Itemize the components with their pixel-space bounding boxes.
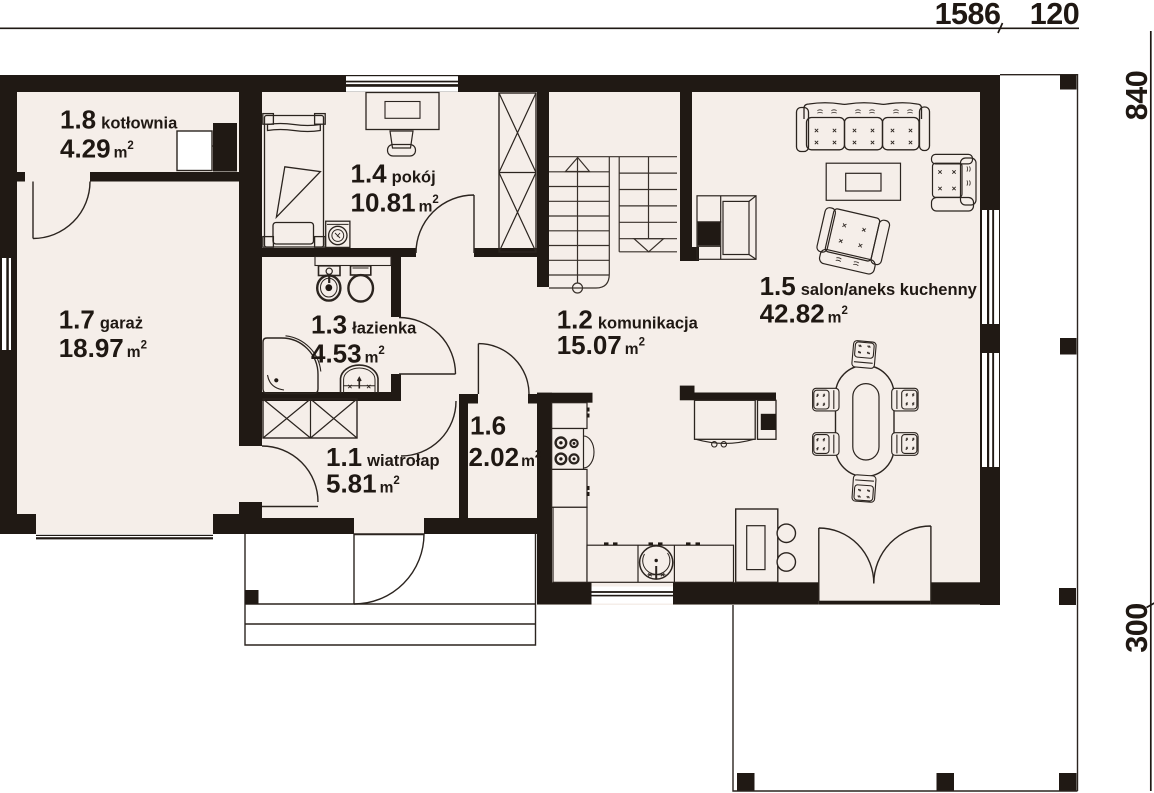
- svg-text:1586: 1586: [935, 0, 1001, 31]
- svg-text:300: 300: [1120, 603, 1154, 652]
- svg-text:120: 120: [1030, 0, 1079, 31]
- svg-text:1.6: 1.6: [470, 411, 506, 441]
- svg-text:840: 840: [1120, 71, 1154, 120]
